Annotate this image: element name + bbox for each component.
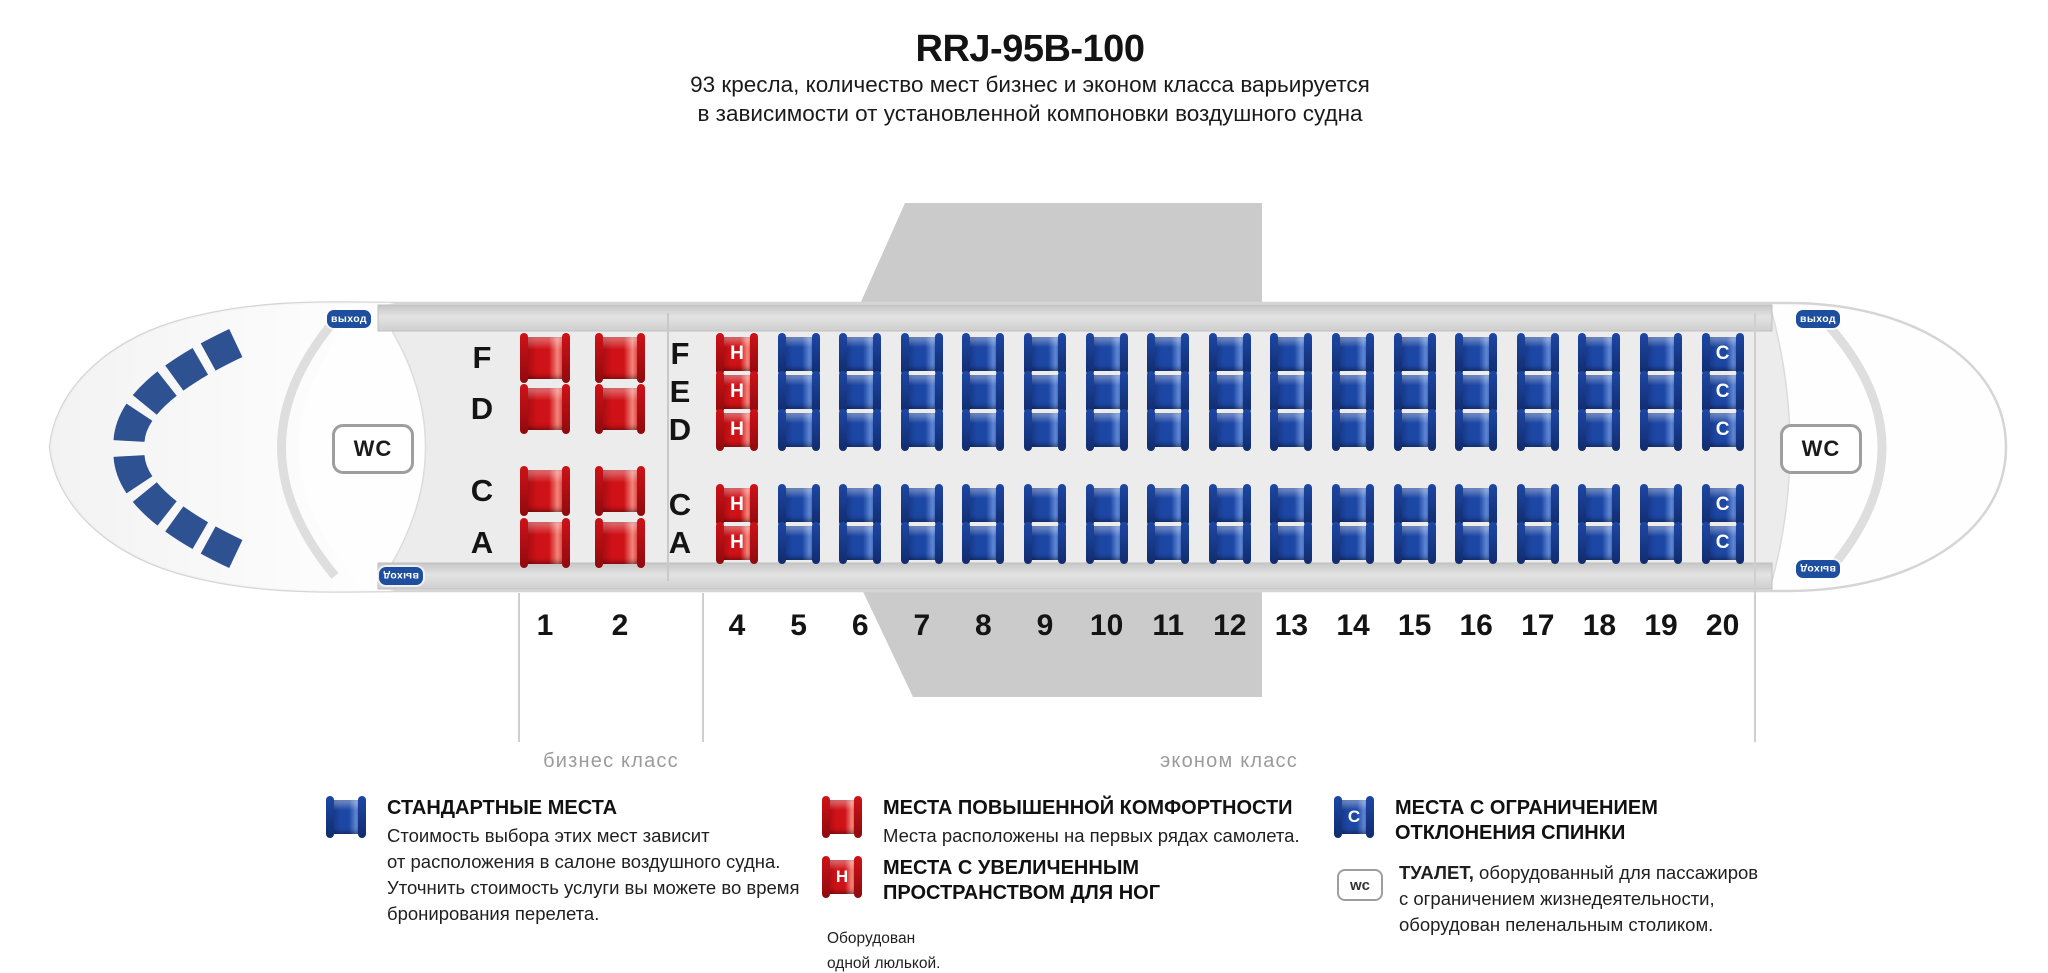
seat-5D[interactable]	[779, 413, 819, 447]
seat-5A[interactable]	[779, 526, 819, 560]
seat-15D[interactable]	[1395, 413, 1435, 447]
seat-16F[interactable]	[1456, 337, 1496, 371]
seat-9E[interactable]	[1025, 375, 1065, 409]
seat-13F[interactable]	[1271, 337, 1311, 371]
seat-10F[interactable]	[1087, 337, 1127, 371]
seat-13D[interactable]	[1271, 413, 1311, 447]
seat-11F[interactable]	[1148, 337, 1188, 371]
seat-14A[interactable]	[1333, 526, 1373, 560]
seat-2D[interactable]	[596, 388, 644, 430]
legend-comfort-text: Места расположены на первых рядах самоле…	[883, 823, 1403, 849]
seat-letter-economy-D: D	[656, 410, 704, 450]
row-number-16: 16	[1450, 608, 1502, 644]
row-number-20: 20	[1697, 608, 1749, 644]
seat-10D[interactable]	[1087, 413, 1127, 447]
seat-12E[interactable]	[1210, 375, 1250, 409]
seat-19D[interactable]	[1641, 413, 1681, 447]
exit-badge-front-bottom: выход	[379, 567, 423, 585]
business-class-label: бизнес класс	[519, 750, 703, 773]
seat-10A[interactable]	[1087, 526, 1127, 560]
seat-9A[interactable]	[1025, 526, 1065, 560]
seat-14C[interactable]	[1333, 488, 1373, 522]
seat-17E[interactable]	[1518, 375, 1558, 409]
row-number-2: 2	[594, 608, 646, 644]
seat-17F[interactable]	[1518, 337, 1558, 371]
seat-letter-business-A: A	[458, 523, 506, 563]
comfort-seat-icon	[823, 800, 861, 834]
seat-16A[interactable]	[1456, 526, 1496, 560]
seat-4A[interactable]: H	[717, 526, 757, 560]
seat-20F[interactable]: C	[1703, 337, 1743, 371]
row-number-12: 12	[1204, 608, 1256, 644]
seat-9C[interactable]	[1025, 488, 1065, 522]
economy-class-label: эконом класс	[703, 750, 1755, 773]
seat-19C[interactable]	[1641, 488, 1681, 522]
seat-17A[interactable]	[1518, 526, 1558, 560]
seat-letter-economy-A: A	[656, 523, 704, 563]
seat-9D[interactable]	[1025, 413, 1065, 447]
cabin-wall-bottom	[378, 563, 1772, 589]
seat-11C[interactable]	[1148, 488, 1188, 522]
row-number-8: 8	[957, 608, 1009, 644]
seat-18F[interactable]	[1579, 337, 1619, 371]
seat-19A[interactable]	[1641, 526, 1681, 560]
seat-2C[interactable]	[596, 470, 644, 512]
seat-8A[interactable]	[963, 526, 1003, 560]
legend-footnote: Оборудован одной люлькой. Предоставляетс…	[827, 927, 952, 973]
seat-12C[interactable]	[1210, 488, 1250, 522]
seat-18A[interactable]	[1579, 526, 1619, 560]
seat-map-page: RRJ-95B-100 93 кресла, количество мест б…	[0, 0, 2048, 973]
seat-4E[interactable]: H	[717, 375, 757, 409]
seat-20A[interactable]: C	[1703, 526, 1743, 560]
seat-18C[interactable]	[1579, 488, 1619, 522]
seat-letter-business-C: C	[458, 471, 506, 511]
seat-4F[interactable]: H	[717, 337, 757, 371]
seat-14F[interactable]	[1333, 337, 1373, 371]
seat-5F[interactable]	[779, 337, 819, 371]
row-number-9: 9	[1019, 608, 1071, 644]
seat-11D[interactable]	[1148, 413, 1188, 447]
seat-17D[interactable]	[1518, 413, 1558, 447]
seat-letter-business-D: D	[458, 389, 506, 429]
seat-13C[interactable]	[1271, 488, 1311, 522]
seat-20E[interactable]: C	[1703, 375, 1743, 409]
seat-letter-economy-F: F	[656, 334, 704, 374]
seat-6A[interactable]	[840, 526, 880, 560]
seat-4D[interactable]: H	[717, 413, 757, 447]
exit-badge-front-top: выход	[327, 310, 371, 328]
row-number-14: 14	[1327, 608, 1379, 644]
seat-6C[interactable]	[840, 488, 880, 522]
seat-14D[interactable]	[1333, 413, 1373, 447]
seat-16D[interactable]	[1456, 413, 1496, 447]
limited-recline-seat-icon: C	[1335, 800, 1373, 834]
seat-20D[interactable]: C	[1703, 413, 1743, 447]
seat-15A[interactable]	[1395, 526, 1435, 560]
seat-4C[interactable]: H	[717, 488, 757, 522]
row-number-19: 19	[1635, 608, 1687, 644]
seat-18D[interactable]	[1579, 413, 1619, 447]
seat-16E[interactable]	[1456, 375, 1496, 409]
row-number-1: 1	[519, 608, 571, 644]
seat-18E[interactable]	[1579, 375, 1619, 409]
legend-toilet-bold: ТУАЛЕТ,	[1399, 862, 1474, 883]
seat-1A[interactable]	[521, 522, 569, 564]
seat-2A[interactable]	[596, 522, 644, 564]
seat-13A[interactable]	[1271, 526, 1311, 560]
seat-17C[interactable]	[1518, 488, 1558, 522]
seat-5C[interactable]	[779, 488, 819, 522]
standard-seat-icon	[327, 800, 365, 834]
cabin-wall-top	[378, 305, 1772, 331]
seat-2F[interactable]	[596, 337, 644, 379]
seat-10E[interactable]	[1087, 375, 1127, 409]
seat-1D[interactable]	[521, 388, 569, 430]
seat-6E[interactable]	[840, 375, 880, 409]
lavatory-icon: wc	[1337, 869, 1383, 901]
row-number-4: 4	[711, 608, 763, 644]
wing-top	[856, 203, 1262, 313]
seat-7D[interactable]	[902, 413, 942, 447]
seat-8E[interactable]	[963, 375, 1003, 409]
lavatory-front: WC	[332, 424, 414, 474]
seat-8C[interactable]	[963, 488, 1003, 522]
seat-12A[interactable]	[1210, 526, 1250, 560]
seat-15C[interactable]	[1395, 488, 1435, 522]
legend-comfort-title: МЕСТА ПОВЫШЕННОЙ КОМФОРТНОСТИ	[883, 796, 1403, 821]
seat-19F[interactable]	[1641, 337, 1681, 371]
seat-1C[interactable]	[521, 470, 569, 512]
row-number-7: 7	[896, 608, 948, 644]
exit-badge-rear-top: выход	[1796, 310, 1840, 328]
row-number-10: 10	[1081, 608, 1133, 644]
exit-badge-rear-bottom: выход	[1796, 560, 1840, 578]
seat-7F[interactable]	[902, 337, 942, 371]
seat-letter-economy-C: C	[656, 485, 704, 525]
seat-1F[interactable]	[521, 337, 569, 379]
seat-8D[interactable]	[963, 413, 1003, 447]
row-number-15: 15	[1389, 608, 1441, 644]
seat-5E[interactable]	[779, 375, 819, 409]
seat-12D[interactable]	[1210, 413, 1250, 447]
extra-legroom-seat-icon: H	[823, 860, 861, 894]
row-number-13: 13	[1265, 608, 1317, 644]
seat-12F[interactable]	[1210, 337, 1250, 371]
seat-9F[interactable]	[1025, 337, 1065, 371]
legend-recline-title: МЕСТА С ОГРАНИЧЕНИЕМ ОТКЛОНЕНИЯ СПИНКИ	[1395, 796, 1915, 846]
lavatory-rear: WC	[1780, 424, 1862, 474]
seat-13E[interactable]	[1271, 375, 1311, 409]
seat-7E[interactable]	[902, 375, 942, 409]
seat-letter-business-F: F	[458, 338, 506, 378]
row-number-18: 18	[1573, 608, 1625, 644]
seat-7A[interactable]	[902, 526, 942, 560]
legend-toilet-text: ТУАЛЕТ, оборудованный для пассажиров с о…	[1399, 860, 1919, 938]
seat-letter-economy-E: E	[656, 372, 704, 412]
legend-legroom-title: МЕСТА С УВЕЛИЧЕННЫМ ПРОСТРАНСТВОМ ДЛЯ НО…	[883, 856, 1403, 906]
seat-11E[interactable]	[1148, 375, 1188, 409]
seat-19E[interactable]	[1641, 375, 1681, 409]
seat-15E[interactable]	[1395, 375, 1435, 409]
seat-10C[interactable]	[1087, 488, 1127, 522]
seat-15F[interactable]	[1395, 337, 1435, 371]
row-number-17: 17	[1512, 608, 1564, 644]
row-number-5: 5	[773, 608, 825, 644]
row-number-11: 11	[1142, 608, 1194, 644]
seat-6D[interactable]	[840, 413, 880, 447]
seat-11A[interactable]	[1148, 526, 1188, 560]
seat-6F[interactable]	[840, 337, 880, 371]
seat-8F[interactable]	[963, 337, 1003, 371]
seat-7C[interactable]	[902, 488, 942, 522]
seat-14E[interactable]	[1333, 375, 1373, 409]
row-number-6: 6	[834, 608, 886, 644]
seat-16C[interactable]	[1456, 488, 1496, 522]
seat-20C[interactable]: C	[1703, 488, 1743, 522]
